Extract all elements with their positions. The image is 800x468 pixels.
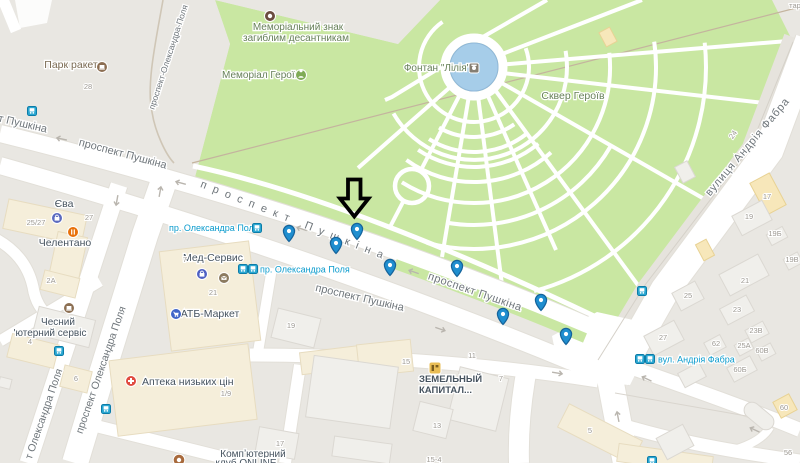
svg-text:15: 15: [402, 357, 410, 366]
svg-text:17: 17: [276, 439, 284, 448]
svg-text:27: 27: [85, 213, 93, 222]
svg-text:11: 11: [468, 351, 476, 360]
svg-text:17: 17: [763, 192, 771, 201]
svg-text:тар: тар: [789, 1, 800, 10]
svg-text:Фонтан "Лілія": Фонтан "Лілія": [404, 63, 471, 74]
svg-text:2А: 2А: [46, 276, 55, 285]
svg-text:вул. Андрія Фабра: вул. Андрія Фабра: [658, 355, 735, 365]
svg-text:19: 19: [745, 212, 753, 221]
svg-text:ЗЕМЕЛЬНЫЙ: ЗЕМЕЛЬНЫЙ: [419, 373, 482, 385]
svg-text:25А: 25А: [737, 341, 750, 350]
svg-text:60Б: 60Б: [733, 365, 746, 374]
svg-text:Меморіал Героїв: Меморіал Героїв: [222, 70, 300, 81]
svg-text:Челентано: Челентано: [39, 237, 92, 249]
svg-text:Єва: Єва: [55, 198, 74, 210]
svg-text:25/27: 25/27: [27, 218, 46, 227]
svg-text:25: 25: [684, 291, 692, 300]
svg-text:62: 62: [712, 339, 720, 348]
svg-text:23В: 23В: [749, 326, 762, 335]
svg-text:56: 56: [784, 448, 792, 457]
svg-text:пр. Олександра Поля: пр. Олександра Поля: [169, 223, 259, 233]
svg-text:пр. Олександра Поля: пр. Олександра Поля: [260, 265, 350, 275]
svg-text:60В: 60В: [755, 346, 768, 355]
svg-text:4: 4: [28, 337, 32, 346]
svg-text:7: 7: [183, 255, 187, 264]
svg-text:7: 7: [499, 374, 503, 383]
svg-text:КАПИТАЛ...: КАПИТАЛ...: [419, 385, 472, 396]
svg-text:Парк ракет: Парк ракет: [44, 59, 98, 71]
svg-text:28: 28: [84, 82, 92, 91]
svg-text:клуб ONLINE: клуб ONLINE: [215, 457, 277, 463]
svg-text:Мед-Сервис: Мед-Сервис: [183, 252, 243, 264]
svg-text:60: 60: [780, 403, 788, 412]
svg-text:'ютерний сервіс: 'ютерний сервіс: [14, 328, 87, 339]
svg-text:19В: 19В: [785, 255, 798, 264]
svg-text:Меморіальний знак: Меморіальний знак: [253, 22, 344, 33]
svg-text:загиблим десантникам: загиблим десантникам: [243, 32, 349, 44]
svg-text:1/9: 1/9: [221, 389, 231, 398]
svg-text:Чесний: Чесний: [41, 317, 75, 328]
svg-text:19: 19: [287, 321, 295, 330]
svg-text:19Б: 19Б: [768, 229, 781, 238]
svg-text:Сквер Героїв: Сквер Героїв: [541, 90, 605, 102]
svg-text:Аптека низьких цін: Аптека низьких цін: [142, 376, 234, 388]
svg-text:АТБ-Маркет: АТБ-Маркет: [181, 308, 240, 320]
svg-text:13: 13: [433, 421, 441, 430]
svg-text:23: 23: [733, 305, 741, 314]
svg-text:21: 21: [741, 276, 749, 285]
svg-text:6: 6: [74, 374, 78, 383]
svg-text:27: 27: [659, 333, 667, 342]
svg-text:15-4: 15-4: [426, 455, 441, 463]
svg-text:21: 21: [209, 288, 217, 297]
svg-text:5: 5: [588, 426, 592, 435]
